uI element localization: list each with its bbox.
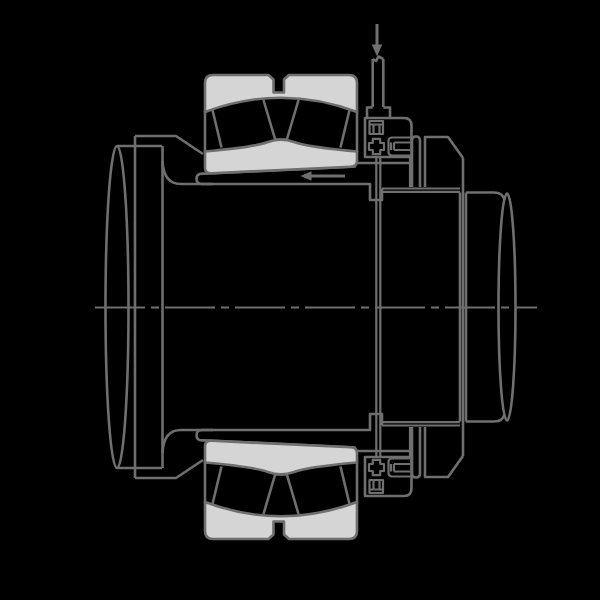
oil-supply-pipe-flange bbox=[367, 108, 390, 119]
lower-half-assembly-mirrored bbox=[135, 414, 505, 539]
down-arrowhead-icon bbox=[372, 45, 382, 57]
oil-supply-connection bbox=[367, 24, 390, 118]
bearing-mounting-drawing bbox=[0, 0, 600, 600]
upper-half-assembly bbox=[135, 75, 505, 200]
oil-supply-pipe bbox=[373, 57, 384, 108]
diagram-stage bbox=[0, 0, 600, 600]
oil-supply-arrow bbox=[372, 24, 382, 57]
drive-up-arrow bbox=[301, 171, 346, 180]
left-arrowhead-icon bbox=[301, 171, 312, 180]
